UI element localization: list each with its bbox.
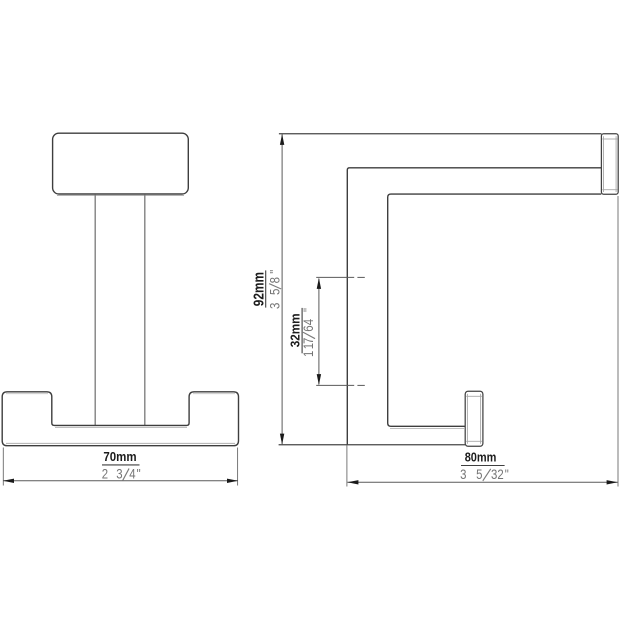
svg-text:80mm: 80mm: [465, 449, 497, 464]
svg-text:92mm: 92mm: [251, 272, 267, 306]
svg-text:70mm: 70mm: [103, 449, 136, 464]
svg-text:234": 234": [102, 467, 141, 482]
svg-text:32mm: 32mm: [288, 313, 303, 347]
